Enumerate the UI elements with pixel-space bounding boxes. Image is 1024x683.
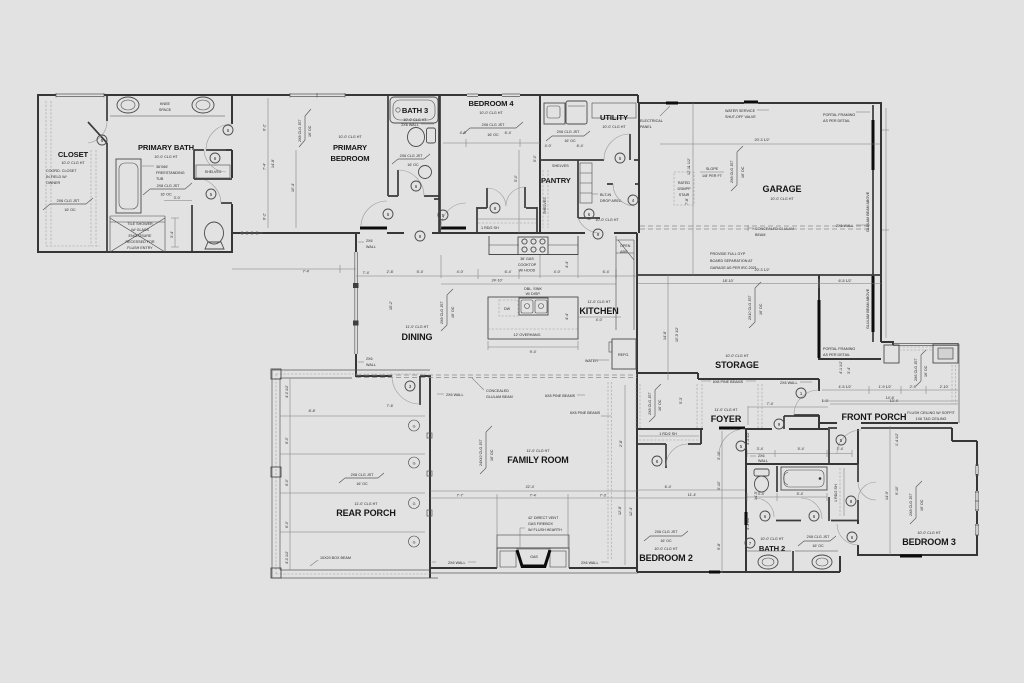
svg-text:6'-0': 6'-0' bbox=[285, 479, 289, 486]
svg-text:16' OC: 16' OC bbox=[451, 306, 455, 318]
svg-text:6X8 PINE BEAMS: 6X8 PINE BEAMS bbox=[545, 394, 576, 398]
svg-text:GLULAM BEAM ABOVE: GLULAM BEAM ABOVE bbox=[866, 191, 870, 232]
svg-text:G: G bbox=[413, 541, 416, 545]
svg-text:FOYER: FOYER bbox=[711, 414, 742, 424]
svg-text:5'-0': 5'-0' bbox=[533, 155, 537, 162]
svg-text:6'-4': 6'-4' bbox=[505, 270, 512, 274]
svg-text:4'-4': 4'-4' bbox=[565, 313, 569, 320]
svg-text:6'-0': 6'-0' bbox=[285, 521, 289, 528]
svg-text:DROP AREA: DROP AREA bbox=[600, 199, 622, 203]
svg-text:7'-8': 7'-8' bbox=[685, 198, 689, 205]
svg-text:G: G bbox=[413, 425, 416, 429]
svg-text:CLOSET: CLOSET bbox=[58, 150, 89, 159]
svg-text:WALL: WALL bbox=[366, 363, 376, 367]
svg-text:2X8 CLG JST: 2X8 CLG JST bbox=[648, 392, 652, 415]
svg-text:WATER SERVICE: WATER SERVICE bbox=[725, 109, 756, 113]
svg-text:5'-10': 5'-10' bbox=[717, 481, 721, 490]
svg-text:FREESTANDING: FREESTANDING bbox=[156, 171, 185, 175]
svg-text:2X8 CLG JST: 2X8 CLG JST bbox=[440, 301, 444, 324]
svg-text:W/ DISP.: W/ DISP. bbox=[526, 292, 541, 296]
svg-text:2X6 WALL: 2X6 WALL bbox=[836, 224, 854, 228]
svg-text:20'-3 1/2': 20'-3 1/2' bbox=[755, 268, 770, 272]
svg-text:2X6 CLG JST: 2X6 CLG JST bbox=[482, 123, 505, 127]
svg-text:9'-10': 9'-10' bbox=[895, 486, 899, 495]
svg-text:2X8 CLG JST: 2X8 CLG JST bbox=[909, 493, 913, 516]
svg-text:RECESSED FOR: RECESSED FOR bbox=[125, 240, 154, 244]
svg-text:BATH 2: BATH 2 bbox=[759, 544, 785, 553]
svg-text:6'-5 1/2': 6'-5 1/2' bbox=[839, 279, 852, 283]
svg-text:SHUT-OFF VALVE: SHUT-OFF VALVE bbox=[725, 115, 756, 119]
svg-text:16' OC: 16' OC bbox=[924, 365, 928, 377]
svg-text:4'-0': 4'-0' bbox=[457, 270, 464, 274]
svg-text:1'-9 1/2': 1'-9 1/2' bbox=[879, 385, 892, 389]
svg-text:BATH 3: BATH 3 bbox=[402, 106, 428, 115]
svg-text:1/8' PER FT: 1/8' PER FT bbox=[702, 174, 723, 178]
svg-text:10'-0' CLG HT: 10'-0' CLG HT bbox=[602, 125, 626, 129]
svg-text:11'-0' CLG HT: 11'-0' CLG HT bbox=[587, 300, 611, 304]
svg-text:4'-3 1/2': 4'-3 1/2' bbox=[746, 517, 750, 530]
svg-text:16' OC: 16' OC bbox=[356, 482, 368, 486]
svg-text:PORTAL FRAMING: PORTAL FRAMING bbox=[823, 347, 855, 351]
svg-text:6'-2': 6'-2' bbox=[263, 124, 267, 131]
svg-text:PORTAL FRAMING: PORTAL FRAMING bbox=[823, 113, 855, 117]
svg-text:6'-4': 6'-4' bbox=[577, 144, 584, 148]
svg-text:1'-4 1/2': 1'-4 1/2' bbox=[895, 433, 899, 446]
svg-text:7'-7': 7'-7' bbox=[457, 494, 464, 498]
svg-text:12'-4': 12'-4' bbox=[629, 507, 633, 516]
svg-text:5'-0': 5'-0' bbox=[514, 175, 518, 182]
svg-text:16' OC: 16' OC bbox=[160, 193, 172, 197]
svg-text:12'-8': 12'-8' bbox=[618, 506, 622, 515]
svg-text:COORD. CLOSET: COORD. CLOSET bbox=[46, 169, 77, 173]
svg-text:10'-0' CLG HT: 10'-0' CLG HT bbox=[760, 537, 784, 541]
svg-text:PANTRY: PANTRY bbox=[541, 176, 571, 185]
svg-text:6'-4': 6'-4' bbox=[603, 270, 610, 274]
svg-text:1 RD/2 SH: 1 RD/2 SH bbox=[834, 484, 838, 502]
svg-text:1X6 T&G CEILING: 1X6 T&G CEILING bbox=[916, 417, 947, 421]
svg-text:22'-4': 22'-4' bbox=[526, 485, 535, 489]
svg-text:W/ FLUSH HEARTH: W/ FLUSH HEARTH bbox=[528, 528, 562, 532]
svg-text:36'X66': 36'X66' bbox=[156, 165, 168, 169]
svg-text:13'-4': 13'-4' bbox=[890, 399, 899, 403]
svg-text:4'-0': 4'-0' bbox=[554, 270, 561, 274]
svg-text:GARAGE AS PER IRC 2021: GARAGE AS PER IRC 2021 bbox=[710, 266, 757, 270]
svg-text:3'-4': 3'-4' bbox=[170, 231, 174, 238]
svg-text:DSMPP: DSMPP bbox=[677, 187, 691, 191]
svg-text:11'-0' CLG HT: 11'-0' CLG HT bbox=[526, 449, 550, 453]
svg-text:2X6: 2X6 bbox=[366, 357, 373, 361]
svg-text:2X6 CLG JST: 2X6 CLG JST bbox=[914, 358, 918, 381]
svg-text:16' OC: 16' OC bbox=[658, 399, 662, 411]
svg-text:2X8 CLG JST: 2X8 CLG JST bbox=[298, 119, 302, 142]
svg-text:2X6 CLG JST: 2X6 CLG JST bbox=[655, 530, 678, 534]
svg-text:2'-9': 2'-9' bbox=[910, 385, 917, 389]
svg-text:16' OC: 16' OC bbox=[660, 539, 672, 543]
svg-text:10'-0' CLG HT: 10'-0' CLG HT bbox=[338, 135, 362, 139]
svg-text:6'-4': 6'-4' bbox=[665, 485, 672, 489]
svg-text:10'-4': 10'-4' bbox=[291, 183, 295, 192]
svg-text:AS PER DETAIL: AS PER DETAIL bbox=[823, 119, 850, 123]
svg-text:SHELVES: SHELVES bbox=[552, 164, 569, 168]
svg-text:10'-0' CLG HT: 10'-0' CLG HT bbox=[61, 161, 85, 165]
svg-text:STORAGE: STORAGE bbox=[715, 360, 759, 370]
svg-text:16' OC: 16' OC bbox=[487, 133, 499, 137]
svg-text:6'-0': 6'-0' bbox=[285, 437, 289, 444]
svg-text:GLULAM BEAM: GLULAM BEAM bbox=[486, 395, 513, 399]
svg-text:OPEN: OPEN bbox=[620, 244, 631, 248]
svg-text:9'-4': 9'-4' bbox=[530, 350, 537, 354]
svg-text:6'-4': 6'-4' bbox=[505, 131, 512, 135]
svg-text:5'-4': 5'-4' bbox=[798, 447, 805, 451]
svg-text:FRONT PORCH: FRONT PORCH bbox=[842, 412, 907, 422]
svg-text:W/ GLASS: W/ GLASS bbox=[131, 228, 149, 232]
svg-text:GLULAM BEAM ABOVE: GLULAM BEAM ABOVE bbox=[866, 288, 870, 329]
svg-text:SLOPE: SLOPE bbox=[706, 167, 719, 171]
svg-text:11'-0' CLG HT: 11'-0' CLG HT bbox=[405, 325, 429, 329]
svg-text:PRIMARY BATH: PRIMARY BATH bbox=[138, 143, 194, 152]
svg-text:2X6 WALL: 2X6 WALL bbox=[581, 561, 599, 565]
svg-text:2'-10': 2'-10' bbox=[940, 385, 949, 389]
svg-text:AS PER DETAIL: AS PER DETAIL bbox=[823, 353, 850, 357]
svg-text:16' OC: 16' OC bbox=[564, 139, 576, 143]
svg-text:4'-0': 4'-0' bbox=[460, 131, 467, 135]
svg-text:3'-4': 3'-4' bbox=[847, 367, 851, 374]
svg-text:6X8 PINE BEAMS: 6X8 PINE BEAMS bbox=[570, 411, 601, 415]
svg-text:10'-0' CLG HT: 10'-0' CLG HT bbox=[595, 218, 619, 222]
svg-text:FAMILY ROOM: FAMILY ROOM bbox=[507, 455, 568, 465]
svg-text:BEDROOM: BEDROOM bbox=[331, 154, 370, 163]
svg-text:4'-5 1/2': 4'-5 1/2' bbox=[839, 385, 852, 389]
svg-text:GAS FIREBOX: GAS FIREBOX bbox=[528, 522, 554, 526]
svg-text:7'-4': 7'-4' bbox=[767, 402, 774, 406]
svg-text:KNEE: KNEE bbox=[160, 102, 171, 106]
svg-text:14'-8': 14'-8' bbox=[271, 159, 275, 168]
svg-text:24'-10': 24'-10' bbox=[492, 279, 503, 283]
svg-text:W/ HOOD: W/ HOOD bbox=[519, 269, 536, 273]
svg-text:KITCHEN: KITCHEN bbox=[579, 306, 618, 316]
svg-text:10'-0' CLG HT: 10'-0' CLG HT bbox=[770, 197, 794, 201]
svg-text:10X20 BOX BEAM: 10X20 BOX BEAM bbox=[320, 556, 351, 560]
svg-text:1 RD/2 SH: 1 RD/2 SH bbox=[481, 226, 499, 230]
svg-text:DINING: DINING bbox=[402, 332, 433, 342]
svg-text:14'-8': 14'-8' bbox=[663, 331, 667, 340]
svg-text:16' OC: 16' OC bbox=[490, 449, 494, 461]
svg-text:TILE SHOWER: TILE SHOWER bbox=[127, 222, 153, 226]
svg-text:4'-0 1/2': 4'-0 1/2' bbox=[285, 385, 289, 398]
svg-text:5'-3': 5'-3' bbox=[679, 397, 683, 404]
svg-text:2X6 CLG JST: 2X6 CLG JST bbox=[807, 535, 830, 539]
svg-text:1 RD/2 SH: 1 RD/2 SH bbox=[659, 432, 677, 436]
svg-text:36' GAS: 36' GAS bbox=[520, 257, 534, 261]
svg-text:11'-0' CLG HT: 11'-0' CLG HT bbox=[354, 502, 378, 506]
svg-text:10'-0' CLG HT: 10'-0' CLG HT bbox=[725, 354, 749, 358]
svg-text:4'-0': 4'-0' bbox=[545, 144, 552, 148]
svg-text:5'-4': 5'-4' bbox=[797, 492, 804, 496]
svg-text:4'-0': 4'-0' bbox=[596, 318, 603, 322]
svg-text:11'-0' CLG HT: 11'-0' CLG HT bbox=[714, 408, 738, 412]
svg-text:42' DIRECT VENT: 42' DIRECT VENT bbox=[528, 516, 559, 520]
svg-text:7'-4': 7'-4' bbox=[303, 270, 310, 274]
svg-text:BLT-IN: BLT-IN bbox=[600, 193, 612, 197]
svg-text:20'-3 1/2': 20'-3 1/2' bbox=[755, 138, 770, 142]
svg-text:7'-3': 7'-3' bbox=[600, 494, 607, 498]
svg-text:STAIR: STAIR bbox=[679, 193, 690, 197]
svg-text:5'-4': 5'-4' bbox=[417, 270, 424, 274]
svg-text:BEAM: BEAM bbox=[755, 233, 765, 237]
svg-text:2X6 WALL: 2X6 WALL bbox=[446, 393, 464, 397]
svg-text:BEDROOM 2: BEDROOM 2 bbox=[639, 553, 693, 563]
svg-text:SPACE: SPACE bbox=[159, 108, 172, 112]
svg-text:PANEL: PANEL bbox=[640, 125, 652, 129]
svg-text:FLUSH CEILING W/ SOFFIT: FLUSH CEILING W/ SOFFIT bbox=[907, 411, 955, 415]
svg-text:16' OC: 16' OC bbox=[308, 125, 312, 137]
svg-text:2X8 CLG JST: 2X8 CLG JST bbox=[730, 160, 734, 183]
svg-text:7'-6': 7'-6' bbox=[387, 404, 394, 408]
svg-text:14'-9': 14'-9' bbox=[885, 491, 889, 500]
svg-text:ENCLOSURE: ENCLOSURE bbox=[129, 234, 152, 238]
svg-text:11'-4': 11'-4' bbox=[688, 493, 697, 497]
svg-text:7'-4': 7'-4' bbox=[530, 494, 537, 498]
svg-text:10'-0' CLG HT: 10'-0' CLG HT bbox=[403, 118, 427, 122]
svg-text:SHELVES: SHELVES bbox=[543, 197, 547, 214]
svg-text:G: G bbox=[413, 502, 416, 506]
svg-text:7'-4': 7'-4' bbox=[363, 271, 370, 275]
svg-text:2X6 CLG JST: 2X6 CLG JST bbox=[57, 199, 80, 203]
svg-text:UTILITY: UTILITY bbox=[600, 113, 628, 122]
svg-text:12'-11 1/2': 12'-11 1/2' bbox=[687, 158, 691, 175]
svg-text:GARAGE: GARAGE bbox=[763, 184, 802, 194]
svg-text:3'-0': 3'-0' bbox=[174, 196, 181, 200]
svg-text:24X10 CLG JST: 24X10 CLG JST bbox=[479, 438, 483, 466]
svg-text:15'-2': 15'-2' bbox=[389, 301, 393, 310]
svg-text:WATER: WATER bbox=[585, 359, 598, 363]
svg-text:ABV: ABV bbox=[620, 250, 628, 254]
svg-text:2X6 CLG JST: 2X6 CLG JST bbox=[557, 130, 580, 134]
svg-text:BEDROOM 3: BEDROOM 3 bbox=[902, 537, 956, 547]
svg-text:DBL. SINK: DBL. SINK bbox=[524, 287, 542, 291]
svg-text:8'-8': 8'-8' bbox=[309, 409, 316, 413]
svg-text:DW: DW bbox=[504, 307, 511, 311]
svg-text:2'-8': 2'-8' bbox=[619, 440, 623, 447]
svg-text:2X6 WALL: 2X6 WALL bbox=[401, 123, 419, 127]
svg-text:2X8 CLG JST: 2X8 CLG JST bbox=[157, 184, 180, 188]
svg-text:7'-4': 7'-4' bbox=[263, 163, 267, 170]
svg-text:3'-10': 3'-10' bbox=[717, 451, 721, 460]
svg-text:BOARD SEPARATION AT: BOARD SEPARATION AT bbox=[710, 259, 753, 263]
svg-text:2X6 WALL: 2X6 WALL bbox=[448, 561, 466, 565]
svg-text:2X6 WALL: 2X6 WALL bbox=[780, 381, 798, 385]
svg-text:REAR PORCH: REAR PORCH bbox=[336, 508, 396, 518]
svg-text:6X8 PINE BEAMS: 6X8 PINE BEAMS bbox=[713, 380, 744, 384]
svg-text:4'-3 1/2': 4'-3 1/2' bbox=[746, 432, 750, 445]
svg-text:2X8 CLG JST: 2X8 CLG JST bbox=[351, 473, 374, 477]
svg-text:16' OC: 16' OC bbox=[64, 208, 76, 212]
svg-text:16' OC: 16' OC bbox=[920, 499, 924, 511]
svg-text:10'-0' CLG HT: 10'-0' CLG HT bbox=[154, 155, 178, 159]
svg-text:3'-4': 3'-4' bbox=[757, 447, 764, 451]
svg-text:16' OC: 16' OC bbox=[812, 544, 824, 548]
svg-text:10'-0' CLG HT: 10'-0' CLG HT bbox=[917, 531, 941, 535]
svg-text:WALL: WALL bbox=[758, 459, 768, 463]
svg-text:2X6: 2X6 bbox=[366, 239, 373, 243]
svg-text:10'-0' CLG HT: 10'-0' CLG HT bbox=[654, 547, 678, 551]
svg-text:9'-8': 9'-8' bbox=[717, 543, 721, 550]
svg-text:PRIMARY: PRIMARY bbox=[333, 143, 367, 152]
svg-text:6'-2': 6'-2' bbox=[263, 213, 267, 220]
svg-text:G: G bbox=[413, 462, 416, 466]
svg-text:IN FIELD W/: IN FIELD W/ bbox=[46, 175, 68, 179]
svg-text:TUB: TUB bbox=[156, 177, 164, 181]
svg-text:12' OVERHANG: 12' OVERHANG bbox=[514, 333, 541, 337]
svg-text:COOKTOP: COOKTOP bbox=[518, 263, 537, 267]
svg-text:BEDROOM 4: BEDROOM 4 bbox=[468, 99, 514, 108]
svg-text:2X10 CLG JST: 2X10 CLG JST bbox=[748, 294, 752, 320]
svg-text:2X6: 2X6 bbox=[758, 454, 765, 458]
svg-text:RATED: RATED bbox=[678, 181, 691, 185]
svg-text:REFG.: REFG. bbox=[618, 353, 629, 357]
svg-text:16' OC: 16' OC bbox=[741, 166, 745, 178]
svg-text:2X6 CLG JST: 2X6 CLG JST bbox=[400, 154, 423, 158]
svg-text:10'-0' CLG HT: 10'-0' CLG HT bbox=[479, 111, 503, 115]
svg-text:3'-4': 3'-4' bbox=[758, 492, 765, 496]
svg-text:CONCEALED: CONCEALED bbox=[486, 389, 509, 393]
svg-text:2'-8': 2'-8' bbox=[387, 270, 394, 274]
svg-text:OWNER: OWNER bbox=[46, 181, 60, 185]
svg-text:4'-1 1/2': 4'-1 1/2' bbox=[839, 361, 843, 374]
svg-text:18'-10': 18'-10' bbox=[723, 279, 734, 283]
svg-text:WALL: WALL bbox=[366, 245, 376, 249]
svg-text:14'-5': 14'-5' bbox=[754, 491, 758, 500]
svg-text:PROVIDE FULL GYP: PROVIDE FULL GYP bbox=[710, 252, 746, 256]
svg-text:4'-0 1/2': 4'-0 1/2' bbox=[285, 551, 289, 564]
svg-text:ELECTRICAL: ELECTRICAL bbox=[640, 119, 663, 123]
svg-text:4'-4': 4'-4' bbox=[565, 261, 569, 268]
svg-text:16' OC: 16' OC bbox=[407, 163, 419, 167]
svg-text:GAS: GAS bbox=[530, 555, 538, 559]
svg-text:16' OC: 16' OC bbox=[759, 303, 763, 315]
svg-text:10'-5 1/2': 10'-5 1/2' bbox=[675, 327, 679, 342]
svg-text:FLUSH ENTRY: FLUSH ENTRY bbox=[127, 246, 153, 250]
svg-text:1'-0': 1'-0' bbox=[822, 399, 829, 403]
